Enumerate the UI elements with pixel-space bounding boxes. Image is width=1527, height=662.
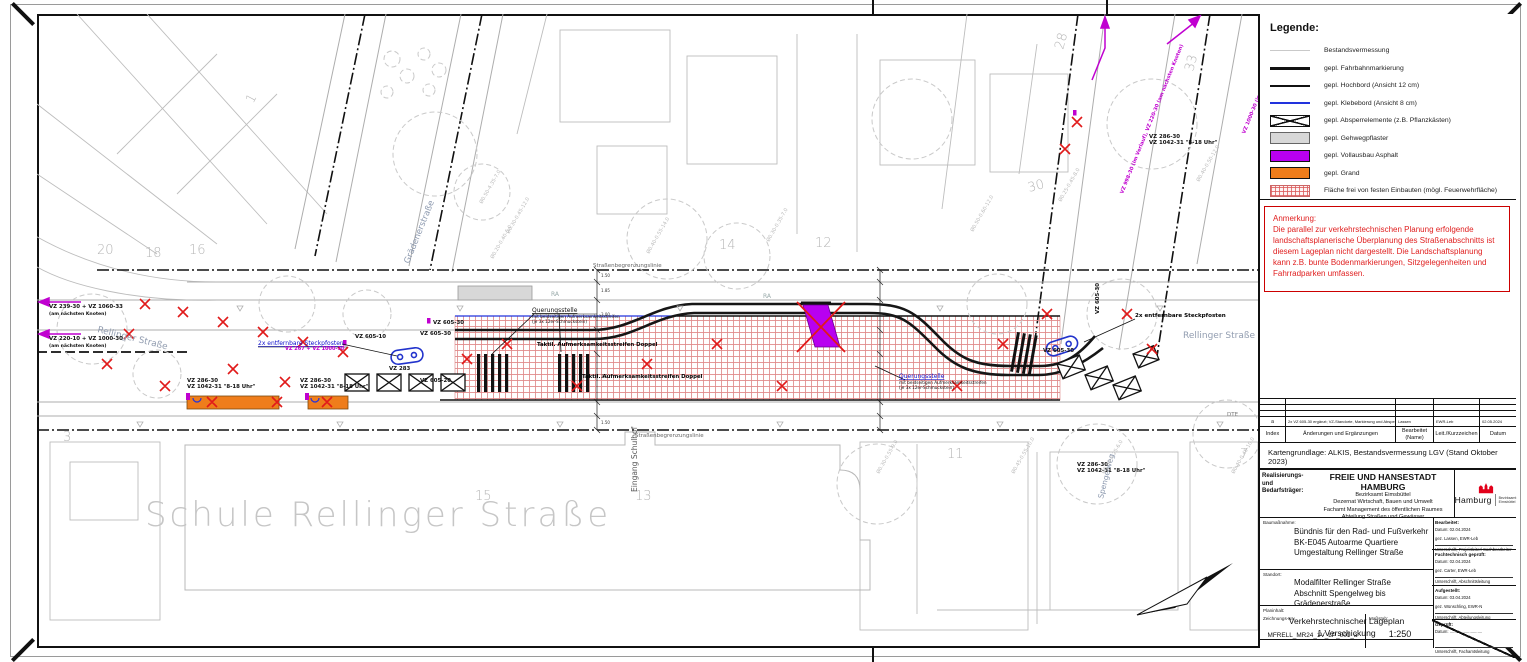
- map-base-row: Kartengrundlage: ALKIS, Bestandsvermessu…: [1260, 446, 1516, 470]
- ra-label-2: RA: [763, 293, 772, 300]
- sign-label-605-30d: VZ 605-30: [1095, 283, 1101, 314]
- legend-item: gepl. Gehwegpflaster: [1270, 130, 1506, 148]
- legend-item: gepl. Klebebord (Ansicht 8 cm): [1270, 95, 1506, 113]
- legend-swatch-paving: [1270, 132, 1310, 144]
- sign-label-239: VZ 239-30 + VZ 1060-33: [49, 304, 123, 310]
- legend-item: gepl. Hochbord (Ansicht 12 cm): [1270, 77, 1506, 95]
- authority-block: FREIE UND HANSESTADT HAMBURG Bezirksamt …: [1312, 470, 1454, 517]
- crossing-label-1-title: Querungsstelle: [532, 307, 578, 314]
- map-base-text: Kartengrundlage: ALKIS, Bestandsvermessu…: [1260, 448, 1516, 466]
- legend-swatch-glued-curb: [1270, 102, 1310, 104]
- remark-title: Anmerkung:: [1273, 213, 1501, 224]
- client-header: Realisierungs- und Bedarfsträger: FREIE …: [1260, 470, 1516, 518]
- street-graedenerstrasse: [295, 14, 503, 272]
- sign-label-239-note: (am nächsten Knoten): [49, 311, 107, 317]
- legend-item: gepl. Grand: [1270, 165, 1506, 183]
- scale-cell: Maßstab: 1:250: [1366, 614, 1434, 648]
- svg-text:2.50: 2.50: [601, 374, 610, 379]
- plan-sheet: { "legend": { "title": "Legende:", "item…: [0, 0, 1527, 662]
- remark-text: Die parallel zur verkehrstechnischen Pla…: [1273, 225, 1494, 278]
- edge-tick-bottom: [872, 648, 874, 662]
- tactile-label-1: Taktil. Aufmerksamkeitsstreifen Doppel: [537, 342, 658, 348]
- svg-text:30: 30: [1026, 177, 1046, 196]
- legend: Legende: Bestandsvermessung gepl. Fahrba…: [1260, 14, 1516, 200]
- svg-text:Ø0.40-0.55-14.0: Ø0.40-0.55-14.0: [645, 216, 672, 255]
- signbox-fachtechnisch: Fachtechnisch geprüft: Datum: 02.04.2024…: [1432, 550, 1516, 586]
- boundary-line-label-bottom: Straßenbegrenzungslinie: [635, 433, 704, 439]
- sign-label-286-1b: VZ 1042-31 "8-18 Uhr": [187, 384, 256, 390]
- project-section: Baumaßnahme: Bündnis für den Rad- und Fu…: [1260, 518, 1433, 570]
- signbox-geprueft: Geprüft: Datum: ........................…: [1432, 620, 1516, 658]
- sign-label-605-20: VZ 605-20: [420, 378, 451, 384]
- svg-text:14: 14: [719, 238, 736, 253]
- revision-header-row: Index Änderungen und Ergänzungen Bearbei…: [1260, 427, 1516, 442]
- title-block-left: Baumaßnahme: Bündnis für den Rad- und Fu…: [1260, 518, 1434, 648]
- logo-subtitle: Bezirksamt Eimsbüttel: [1499, 496, 1517, 505]
- city-title: FREIE UND HANSESTADT HAMBURG: [1312, 472, 1454, 492]
- crossing-label-2-line3: (je 3x 12er-Schmuckstein): [899, 385, 954, 390]
- revision-table: a 2x VZ 605-30 ergänzt; VZ-Standorte, Ma…: [1260, 398, 1516, 443]
- drawing-number: MFRELL_MR24_1V_LP_001_a: [1268, 632, 1358, 639]
- svg-text:Ø0.20-0.40-5.0: Ø0.20-0.40-5.0: [489, 224, 514, 260]
- location-section: Standort: Modalfilter Rellinger Straße A…: [1260, 570, 1433, 606]
- boundary-line-label-top: Straßenbegrenzungslinie: [593, 263, 662, 269]
- legend-swatch-fire-lane: [1270, 185, 1310, 197]
- svg-text:20: 20: [97, 243, 114, 258]
- svg-text:Ø0.30-0.55-9.0: Ø0.30-0.55-9.0: [875, 439, 900, 475]
- svg-text:11: 11: [947, 447, 964, 462]
- bollard-label-right: 2x entfernbare Steckpfosten: [1135, 313, 1226, 319]
- legend-item: gepl. Absperrelemente (z.B. Pflanzkästen…: [1270, 112, 1506, 130]
- sign-label-220: VZ 220-10 + VZ 1000-30: [49, 336, 123, 342]
- north-arrow: [1137, 563, 1233, 615]
- hamburg-logo: Hamburg Bezirksamt Eimsbüttel: [1454, 470, 1516, 517]
- svg-text:Ø0.50-4.35-7.0: Ø0.50-4.35-7.0: [478, 169, 503, 205]
- svg-text:33: 33: [1182, 53, 1201, 73]
- street-label-rellinger-right: Rellinger Straße: [1183, 331, 1256, 341]
- tree-survey-labels: Ø0.50-4.35-7.0 Ø0.30-0.45-12.0 Ø0.20-0.4…: [478, 144, 1257, 475]
- legend-swatch-high-curb: [1270, 85, 1310, 87]
- sign-label-diag-2: VZ 998-30 (im Verlauf), VZ 220-30 (am nä…: [1119, 44, 1185, 195]
- sign-label-286-3b: VZ 1042-31 "8-18 Uhr": [1149, 140, 1218, 146]
- svg-text:15: 15: [475, 489, 492, 504]
- svg-text:12: 12: [815, 236, 832, 251]
- svg-text:Ø0.30-0.35-7.0: Ø0.30-0.35-7.0: [765, 207, 790, 243]
- sign-label-605-30c: VZ 605-30: [1043, 348, 1074, 354]
- sign-label-283: VZ 283: [389, 366, 410, 372]
- dte-label: DTE: [1227, 412, 1239, 418]
- drawing-number-row: Zeichnungs-Nr.: MFRELL_MR24_1V_LP_001_a …: [1260, 614, 1434, 648]
- drawing-number-cell: Zeichnungs-Nr.: MFRELL_MR24_1V_LP_001_a: [1260, 614, 1366, 648]
- legend-swatch-barrier: [1270, 115, 1310, 127]
- fire-lane-hatch: [455, 316, 1060, 400]
- legend-title: Legende:: [1270, 22, 1506, 34]
- svg-text:3.00: 3.00: [601, 312, 610, 317]
- right-panel: Legende: Bestandsvermessung gepl. Fahrba…: [1258, 14, 1516, 648]
- svg-text:1.85: 1.85: [601, 288, 610, 293]
- svg-text:1: 1: [243, 92, 260, 106]
- crossing-label-1-line3: (je 3x 12er-Schmuckstein): [532, 319, 587, 324]
- crossing-label-2-title: Querungsstelle: [899, 373, 945, 380]
- sign-label-220-note: (am nächsten Knoten): [49, 343, 107, 349]
- logo-divider: [1495, 494, 1496, 506]
- svg-text:1.50: 1.50: [601, 273, 610, 278]
- legend-item: Bestandsvermessung: [1270, 42, 1506, 60]
- svg-text:1.50: 1.50: [601, 420, 610, 425]
- svg-text:3: 3: [63, 430, 71, 445]
- street-label-graedenerstrasse: Grädenerstraße: [403, 199, 437, 265]
- scale-value: 1:250: [1389, 629, 1412, 639]
- sign-label-605-10: VZ 605-10: [355, 334, 386, 340]
- svg-text:28: 28: [1052, 31, 1071, 51]
- svg-text:18: 18: [145, 246, 162, 261]
- legend-item: gepl. Fahrbahnmarkierung: [1270, 60, 1506, 78]
- signature-column: Bearbeitet: Datum: 02.04.2024 gez. Lasse…: [1432, 518, 1516, 648]
- sign-label-605-30b: VZ 605-30: [420, 331, 451, 337]
- signbox-aufgestellt: Aufgestellt: Datum: 03.04.2024 gez. Wüns…: [1432, 586, 1516, 620]
- plan-area: Schule Rellinger Straße Rellinger Straße…: [37, 14, 1258, 648]
- legend-swatch-asphalt: [1270, 150, 1310, 162]
- sign-label-286-4b: VZ 1042-31 "8-18 Uhr": [1077, 468, 1146, 474]
- sign-label-267: VZ 267 + VZ 1000-30: [285, 346, 345, 352]
- svg-text:16: 16: [189, 243, 206, 258]
- gehwegpflaster-patch: [458, 286, 532, 300]
- logo-wordmark: Hamburg: [1455, 495, 1492, 505]
- edge-tick-top-2: [1106, 0, 1108, 14]
- sign-label-286-2b: VZ 1042-31 "8-18 Uhr": [300, 384, 369, 390]
- legend-swatch-survey-line: [1270, 50, 1310, 51]
- tree-canopies: [57, 48, 1258, 524]
- client-label: Realisierungs- und Bedarfsträger:: [1260, 470, 1312, 517]
- edge-tick-top-1: [872, 0, 874, 14]
- legend-swatch-grand: [1270, 167, 1310, 179]
- sign-label-605-30a: VZ 605-30: [433, 320, 464, 326]
- svg-text:Ø0.50-0.60-12.0: Ø0.50-0.60-12.0: [969, 194, 996, 233]
- legend-swatch-road-marking: [1270, 67, 1310, 70]
- remark-box: Anmerkung: Die parallel zur verkehrstech…: [1264, 206, 1510, 292]
- sign-label-diag-1: VZ 1000-30 (im Verlauf), VZ 239-30 (am n…: [1241, 14, 1258, 135]
- legend-item: Fläche frei von festen Einbauten (mögl. …: [1270, 182, 1506, 200]
- svg-text:Ø0.40-0.50-12.0: Ø0.40-0.50-12.0: [1195, 144, 1222, 183]
- hamburg-castle-icon: [1478, 481, 1494, 494]
- ra-label-1: RA: [551, 291, 560, 298]
- school-label: Schule Rellinger Straße: [145, 495, 611, 535]
- signbox-bearbeitet: Bearbeitet: Datum: 02.04.2024 gez. Lasse…: [1432, 518, 1516, 550]
- revision-row-a: a 2x VZ 605-30 ergänzt; VZ-Standorte, Ma…: [1260, 417, 1516, 427]
- svg-text:13: 13: [635, 489, 652, 504]
- legend-item: gepl. Vollausbau Asphalt: [1270, 147, 1506, 165]
